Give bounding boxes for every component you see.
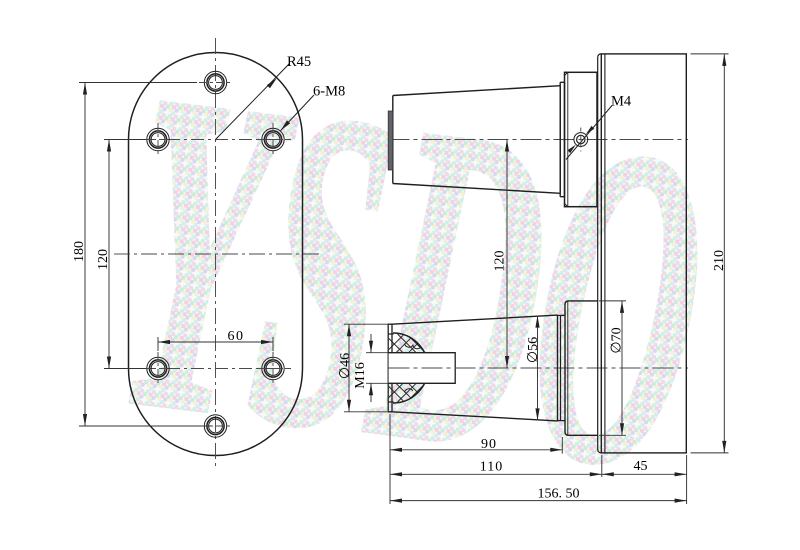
svg-text:6-M8: 6-M8: [313, 84, 345, 100]
svg-text:45: 45: [634, 459, 648, 474]
svg-text:R45: R45: [287, 54, 311, 70]
svg-text:90: 90: [481, 437, 497, 452]
svg-text:156. 50: 156. 50: [538, 487, 580, 502]
svg-text:120: 120: [493, 251, 508, 272]
svg-text:60: 60: [228, 329, 245, 344]
svg-text:210: 210: [712, 250, 727, 271]
svg-text:M4: M4: [611, 94, 632, 110]
svg-text:∅70: ∅70: [610, 327, 625, 353]
svg-text:∅46: ∅46: [338, 353, 353, 379]
svg-text:M16: M16: [353, 362, 368, 388]
svg-text:∅56: ∅56: [526, 337, 541, 363]
svg-text:120: 120: [96, 249, 111, 270]
svg-text:180: 180: [72, 241, 87, 262]
svg-text:110: 110: [480, 459, 503, 474]
